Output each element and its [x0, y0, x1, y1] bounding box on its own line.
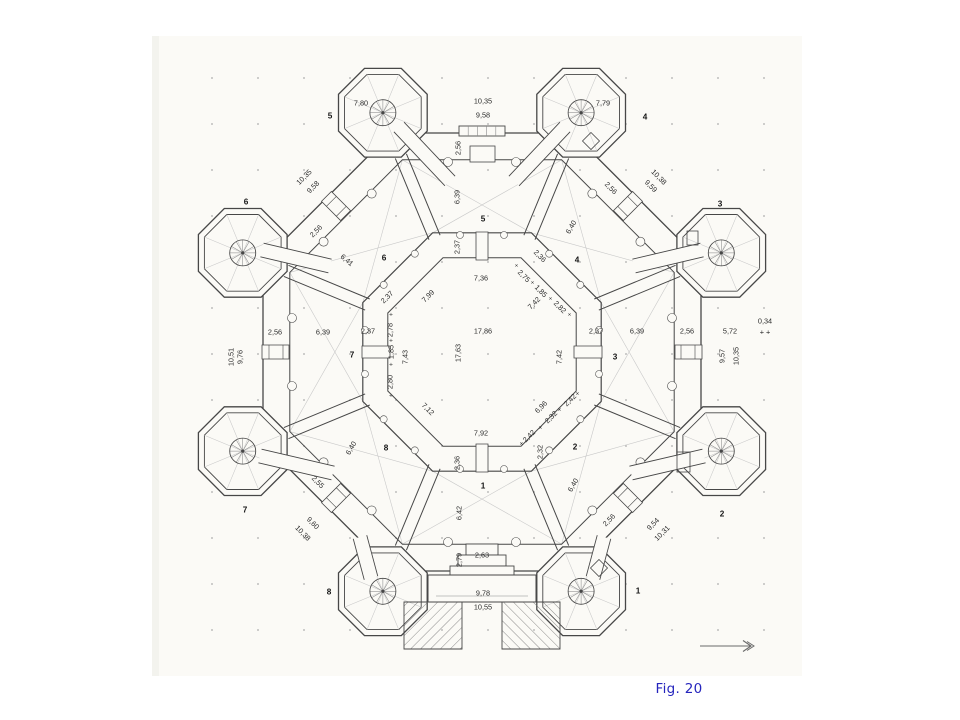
dimension-label: 10,35 — [474, 97, 492, 106]
dimension-label: 7,43 — [401, 350, 410, 364]
room-number: 5 — [481, 215, 486, 224]
dimension-label: 5,72 — [723, 327, 737, 336]
dimension-label: 9,57 — [718, 349, 727, 363]
dimension-label: 6,42 — [455, 506, 464, 520]
room-number: 1 — [481, 482, 486, 491]
room-number: 4 — [575, 256, 580, 265]
dimension-label: 1,85 — [387, 345, 396, 359]
room-number: 7 — [350, 351, 355, 360]
dimension-label: 2,80 — [386, 375, 395, 389]
tower-number: 7 — [243, 506, 248, 515]
dimension-label: 17,86 — [474, 327, 492, 336]
dimension-label: 10,55 — [474, 603, 492, 612]
dimension-label: 2,56 — [680, 327, 694, 336]
tower-number: 4 — [643, 113, 648, 122]
scan-edge-shadow — [152, 36, 159, 676]
tower-number: 5 — [328, 112, 333, 121]
dimension-label: 7,92 — [474, 429, 488, 438]
room-number: 2 — [573, 443, 578, 452]
dimension-label: + — [389, 362, 393, 369]
tower-number: 1 — [636, 587, 641, 596]
dimension-label: 2,37 — [453, 240, 462, 254]
tower-number: 6 — [244, 198, 249, 207]
dimension-label: 10,51 — [227, 348, 236, 366]
dimension-label: 7,36 — [474, 274, 488, 283]
room-number: 8 — [384, 444, 389, 453]
dimension-label: 7,79 — [596, 99, 610, 108]
dimension-label: + + — [760, 328, 771, 337]
dimension-label: 17,63 — [454, 344, 463, 362]
figure-caption: Fig. 20 — [618, 681, 740, 697]
dimension-label: 9,58 — [476, 111, 490, 120]
dimension-label: 6,39 — [630, 327, 644, 336]
dimension-label: 7,80 — [354, 99, 368, 108]
dimension-label: 2,78 — [386, 323, 395, 337]
document-page: 10,359,587,807,797,3617,867,922,639,7810… — [0, 0, 960, 720]
dimension-label: 0,34 — [758, 317, 772, 326]
dimension-label: 2,63 — [475, 551, 489, 560]
dimension-label: + — [389, 312, 393, 319]
tower-number: 2 — [720, 510, 725, 519]
dimension-label: 2,37 — [361, 327, 375, 336]
dimension-label: 2,56 — [454, 141, 463, 155]
dimension-label: 2,56 — [268, 328, 282, 337]
tower-number: 3 — [718, 200, 723, 209]
dimension-label: 2,32 — [536, 445, 545, 459]
dimension-label: 9,78 — [476, 589, 490, 598]
dimension-label: 7,42 — [555, 350, 564, 364]
dimension-label: + — [389, 393, 393, 400]
dimension-label: 2,37 — [589, 327, 603, 336]
dimension-label: 10,35 — [732, 347, 741, 365]
dimension-label: 9,76 — [236, 350, 245, 364]
dimension-label: + — [389, 338, 393, 345]
room-number: 6 — [382, 254, 387, 263]
dimension-label: 6,39 — [453, 190, 462, 204]
dimension-label: 2,79 — [455, 553, 464, 567]
dimension-label: 2,36 — [453, 456, 462, 470]
floor-plan-drawing: 10,359,587,807,797,3617,867,922,639,7810… — [0, 0, 960, 720]
tower-number: 8 — [327, 588, 332, 597]
dimension-label: 6,39 — [316, 328, 330, 337]
room-number: 3 — [613, 353, 618, 362]
